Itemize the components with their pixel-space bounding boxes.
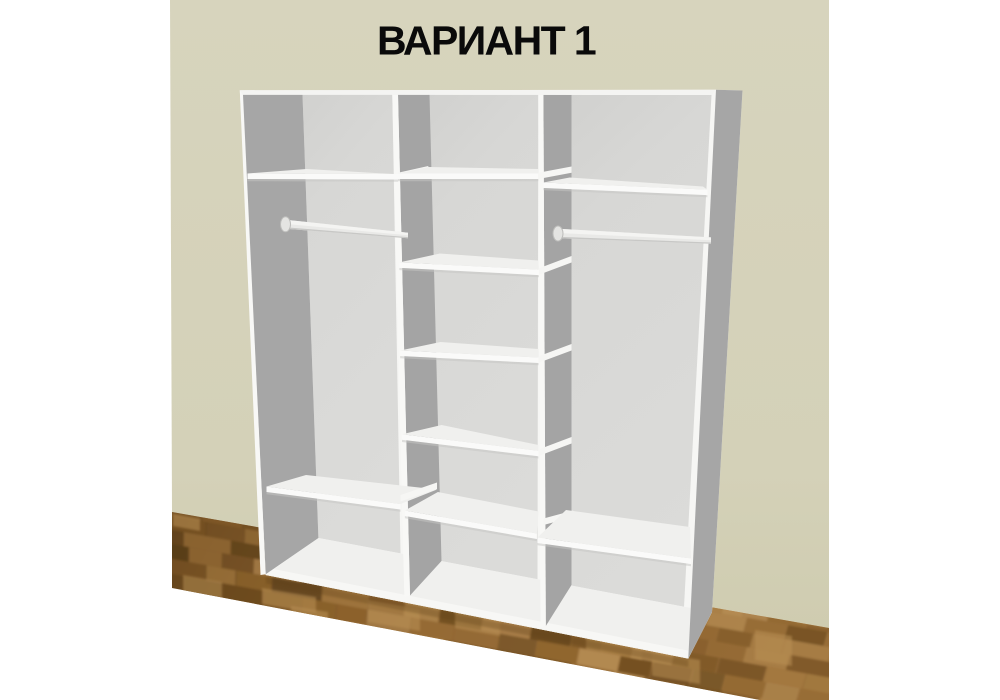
svg-text:ВАРИАНТ 1: ВАРИАНТ 1 [377, 17, 596, 63]
